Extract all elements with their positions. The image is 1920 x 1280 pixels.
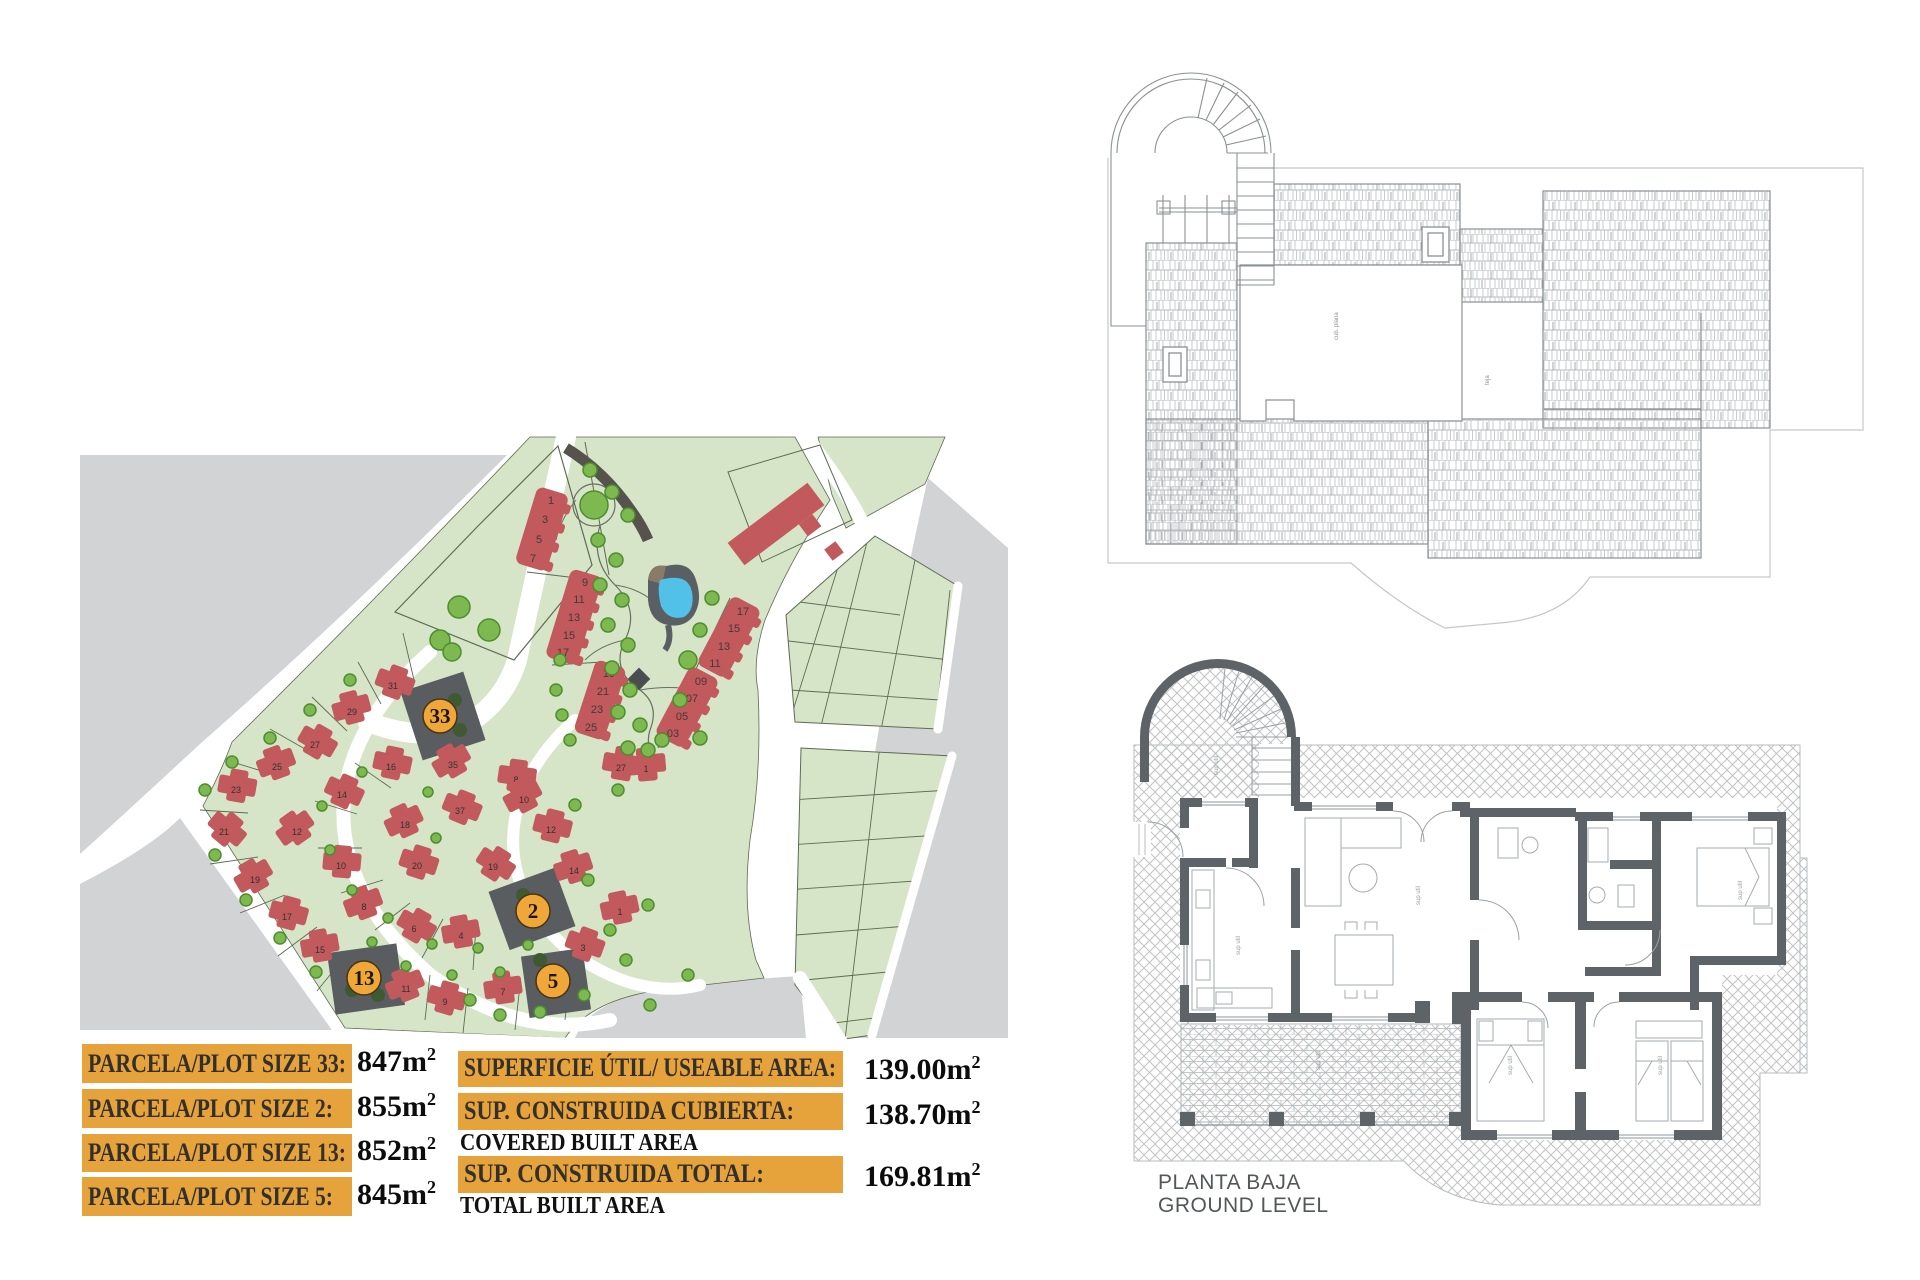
svg-text:05: 05	[676, 711, 688, 723]
svg-text:35: 35	[448, 760, 458, 770]
svg-text:SUPERFICIE ÚTIL/ USEABLE AREA:: SUPERFICIE ÚTIL/ USEABLE AREA:	[464, 1053, 836, 1082]
svg-text:COVERED BUILT AREA: COVERED BUILT AREA	[460, 1130, 699, 1156]
svg-text:sup util: sup util	[1316, 1051, 1322, 1070]
svg-text:PARCELA/PLOT SIZE 33:: PARCELA/PLOT SIZE 33:	[88, 1049, 346, 1078]
svg-text:sup util: sup util	[1508, 1056, 1514, 1075]
svg-text:169.81m2: 169.81m2	[864, 1159, 981, 1193]
svg-text:847m2: 847m2	[357, 1044, 436, 1078]
svg-text:9: 9	[582, 577, 588, 589]
svg-text:855m2: 855m2	[357, 1089, 436, 1123]
svg-text:14: 14	[337, 790, 347, 800]
svg-text:sup util: sup util	[1236, 936, 1242, 955]
svg-text:1: 1	[617, 907, 622, 917]
svg-text:9: 9	[442, 997, 447, 1007]
svg-text:852m2: 852m2	[357, 1133, 436, 1167]
svg-text:09: 09	[695, 676, 707, 688]
svg-text:sup util: sup util	[1214, 756, 1220, 775]
svg-text:5: 5	[548, 969, 559, 993]
svg-text:15: 15	[315, 945, 325, 955]
svg-text:SUP. CONSTRUIDA CUBIERTA:: SUP. CONSTRUIDA CUBIERTA:	[464, 1096, 794, 1125]
svg-text:29: 29	[347, 707, 357, 717]
svg-text:SUP. CONSTRUIDA TOTAL:: SUP. CONSTRUIDA TOTAL:	[464, 1159, 764, 1188]
svg-text:4: 4	[458, 931, 463, 941]
svg-text:PARCELA/PLOT SIZE 13:: PARCELA/PLOT SIZE 13:	[88, 1138, 346, 1167]
svg-text:13: 13	[718, 641, 730, 653]
svg-text:sup util: sup util	[1738, 881, 1744, 900]
svg-text:3: 3	[580, 943, 585, 953]
svg-text:19: 19	[250, 875, 260, 885]
svg-text:8: 8	[361, 902, 366, 912]
svg-text:21: 21	[219, 827, 229, 837]
svg-text:11: 11	[401, 984, 410, 994]
svg-text:1: 1	[548, 495, 554, 507]
svg-text:1: 1	[643, 764, 648, 774]
svg-text:15: 15	[728, 623, 740, 635]
svg-text:139.00m2: 139.00m2	[864, 1052, 981, 1086]
svg-text:10: 10	[519, 795, 529, 805]
svg-text:21: 21	[597, 686, 609, 698]
svg-text:2: 2	[528, 899, 539, 923]
svg-text:33: 33	[430, 704, 451, 728]
svg-text:18: 18	[400, 820, 410, 830]
svg-text:11: 11	[709, 658, 720, 670]
svg-text:5: 5	[536, 534, 542, 546]
svg-text:3: 3	[542, 514, 548, 526]
svg-text:19: 19	[488, 862, 498, 872]
svg-text:27: 27	[616, 763, 626, 773]
svg-text:12: 12	[546, 825, 556, 835]
svg-text:25: 25	[585, 722, 597, 734]
svg-text:27: 27	[310, 740, 320, 750]
svg-text:7: 7	[530, 553, 536, 565]
svg-text:sup util: sup util	[1416, 886, 1422, 905]
svg-text:12: 12	[292, 827, 302, 837]
svg-text:7: 7	[500, 987, 505, 997]
svg-text:PARCELA/PLOT SIZE 2:: PARCELA/PLOT SIZE 2:	[88, 1094, 333, 1123]
svg-text:11: 11	[573, 594, 584, 606]
svg-text:PARCELA/PLOT SIZE 5:: PARCELA/PLOT SIZE 5:	[88, 1182, 333, 1211]
svg-text:845m2: 845m2	[357, 1177, 436, 1211]
svg-text:13: 13	[354, 966, 375, 990]
svg-text:sup util: sup util	[1658, 1056, 1664, 1075]
svg-text:6: 6	[411, 924, 416, 934]
svg-text:PLANTA BAJA: PLANTA BAJA	[1158, 1171, 1301, 1194]
svg-text:teja: teja	[1485, 375, 1491, 385]
svg-text:16: 16	[386, 762, 396, 772]
svg-text:cub. plana: cub. plana	[1334, 312, 1340, 340]
svg-text:15: 15	[563, 630, 575, 642]
svg-text:23: 23	[231, 785, 241, 795]
svg-text:138.70m2: 138.70m2	[864, 1097, 981, 1131]
svg-text:07: 07	[686, 693, 698, 705]
svg-text:31: 31	[388, 681, 398, 691]
svg-text:GROUND LEVEL: GROUND LEVEL	[1158, 1194, 1329, 1217]
svg-text:14: 14	[569, 866, 579, 876]
svg-text:17: 17	[282, 912, 292, 922]
svg-text:10: 10	[336, 861, 346, 871]
svg-text:25: 25	[272, 762, 282, 772]
svg-text:17: 17	[737, 606, 749, 618]
svg-text:37: 37	[455, 806, 465, 816]
svg-text:13: 13	[568, 612, 580, 624]
svg-text:23: 23	[591, 704, 603, 716]
svg-text:20: 20	[412, 861, 422, 871]
svg-text:TOTAL BUILT AREA: TOTAL BUILT AREA	[460, 1193, 666, 1219]
